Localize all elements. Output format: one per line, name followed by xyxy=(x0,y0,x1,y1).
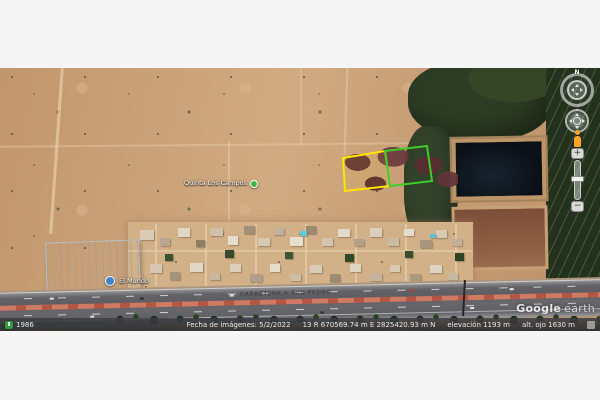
parcel-outline-yellow[interactable] xyxy=(343,151,390,191)
navigation-controls: N + − xyxy=(553,68,600,218)
north-indicator: N xyxy=(574,69,579,76)
arrow-left-icon xyxy=(569,119,572,123)
arrow-down-icon xyxy=(575,93,579,96)
zoom-slider-handle[interactable] xyxy=(571,176,584,182)
quinta-poi-label: Quinta Los Campos xyxy=(184,179,247,187)
arrow-left-icon xyxy=(571,88,574,92)
utm-coordinates: 13 R 670569.74 m E 2825420.93 m N xyxy=(303,321,436,329)
business-poi-label: El Mundo xyxy=(119,277,149,285)
blue-poi-marker[interactable] xyxy=(105,276,115,286)
look-joystick[interactable] xyxy=(567,80,587,100)
look-ring-control[interactable]: N xyxy=(560,73,594,107)
arrow-up-icon xyxy=(575,84,579,87)
attribution-icon xyxy=(587,321,595,329)
arrow-right-icon xyxy=(582,119,585,123)
historical-imagery-chip[interactable]: 1986 xyxy=(5,321,34,329)
watermark-brand: Google xyxy=(516,302,561,315)
pegman-head xyxy=(575,130,580,135)
pegman-body xyxy=(574,136,581,147)
zoom-in-button[interactable]: + xyxy=(571,148,584,159)
elevation: elevación 1193 m xyxy=(447,321,510,329)
arrow-up-icon xyxy=(575,113,579,116)
history-clock-icon xyxy=(5,321,13,329)
eye-altitude: alt. ojo 1630 m xyxy=(522,321,575,329)
imagery-date: Fecha de imágenes: 5/2/2022 xyxy=(187,321,291,329)
zoom-out-button[interactable]: − xyxy=(571,201,584,212)
arrow-right-icon xyxy=(580,88,583,92)
arrow-down-icon xyxy=(575,126,579,129)
watermark-product: earth xyxy=(564,302,595,315)
satellite-map-canvas[interactable]: Quinta Los Campos El Mundo CARRETERA A S… xyxy=(0,68,600,331)
parcel-outline-green[interactable] xyxy=(385,146,432,186)
green-poi-marker[interactable] xyxy=(250,180,258,188)
pegman-street-view-icon[interactable] xyxy=(572,130,583,147)
google-earth-watermark: Googleearth xyxy=(516,302,595,315)
status-bar: 1986 Fecha de imágenes: 5/2/2022 13 R 67… xyxy=(0,318,600,331)
history-year: 1986 xyxy=(16,321,34,329)
